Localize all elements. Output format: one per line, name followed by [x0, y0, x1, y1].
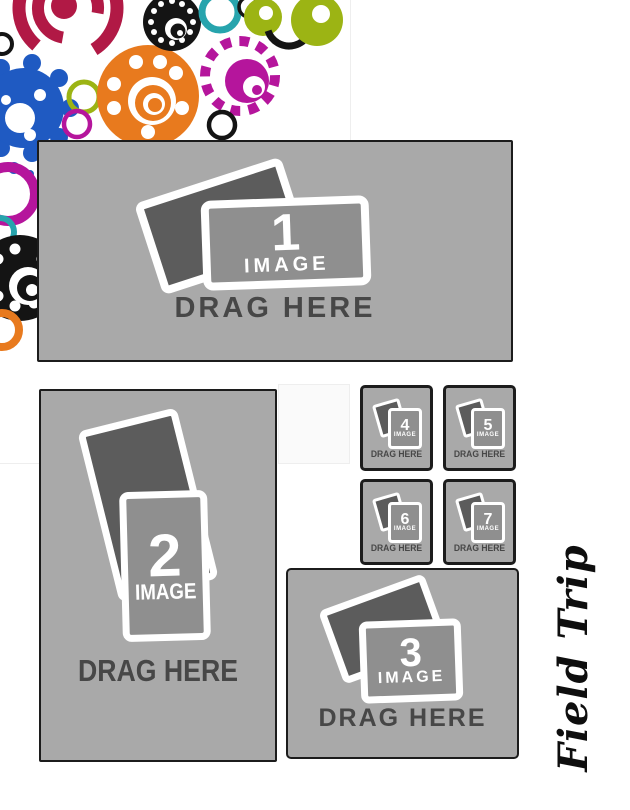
zone-number: 4 — [401, 419, 410, 433]
image-dropzone-5[interactable]: 5 IMAGE DRAG HERE — [443, 385, 516, 471]
image-label: IMAGE — [378, 669, 446, 687]
photo-front-card: 5 IMAGE — [471, 408, 505, 449]
image-label: IMAGE — [135, 580, 197, 604]
image-label: IMAGE — [244, 254, 330, 277]
zone-number: 6 — [401, 513, 410, 527]
zone-number: 5 — [484, 419, 493, 433]
image-dropzone-3[interactable]: 3 IMAGE DRAG HERE — [286, 568, 519, 759]
image-label: IMAGE — [394, 432, 416, 438]
image-label: IMAGE — [477, 432, 499, 438]
image-dropzone-6[interactable]: 6 IMAGE DRAG HERE — [360, 479, 433, 565]
photo-front-card: 3 IMAGE — [359, 618, 464, 704]
drag-here-label: DRAG HERE — [366, 543, 426, 554]
drag-here-label: DRAG HERE — [449, 543, 509, 554]
zone-number: 7 — [484, 513, 493, 527]
drag-here-label: DRAG HERE — [39, 292, 511, 325]
image-dropzone-4[interactable]: 4 IMAGE DRAG HERE — [360, 385, 433, 471]
photo-front-card: 4 IMAGE — [388, 408, 422, 449]
zone-number: 2 — [147, 529, 182, 581]
image-label: IMAGE — [394, 526, 416, 532]
drag-here-label: DRAG HERE — [288, 704, 517, 733]
photo-front-card: 2 IMAGE — [119, 490, 211, 642]
orange-gear — [97, 45, 199, 147]
image-dropzone-2[interactable]: 2 IMAGE DRAG HERE — [39, 389, 277, 762]
horizontal-guide-line — [0, 463, 39, 464]
vertical-guide-line — [350, 0, 351, 140]
drag-here-label: DRAG HERE — [366, 449, 426, 460]
image-label: IMAGE — [477, 526, 499, 532]
photo-front-card: 1 IMAGE — [200, 195, 371, 291]
black-dotted-gear — [143, 0, 201, 51]
photo-front-card: 6 IMAGE — [388, 502, 422, 543]
magenta-gear — [205, 41, 275, 111]
zone-number: 1 — [270, 210, 300, 255]
image-dropzone-7[interactable]: 7 IMAGE DRAG HERE — [443, 479, 516, 565]
image-dropzone-1[interactable]: 1 IMAGE DRAG HERE — [37, 140, 513, 362]
zone-number: 3 — [399, 636, 422, 671]
page-title-vertical[interactable]: Field Trip — [550, 538, 600, 778]
photo-front-card: 7 IMAGE — [471, 502, 505, 543]
empty-guide-cell — [278, 384, 350, 464]
drag-here-label: DRAG HERE — [449, 449, 509, 460]
drag-here-label: DRAG HERE — [57, 653, 258, 689]
